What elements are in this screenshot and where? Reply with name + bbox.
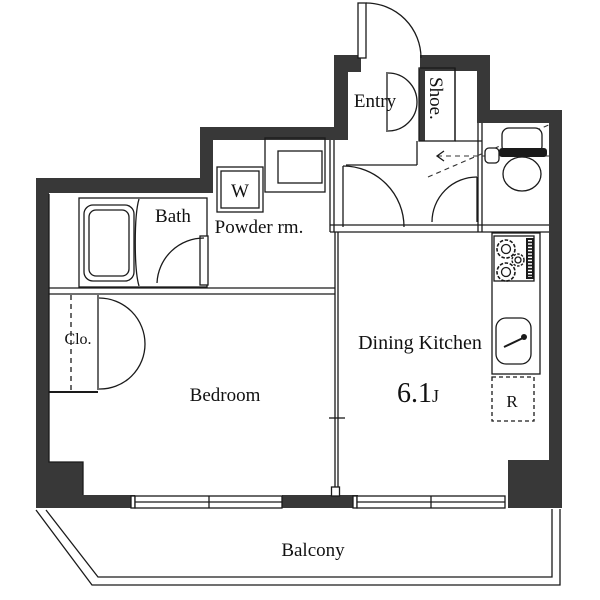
stove-burner-center xyxy=(502,268,511,277)
stove-burner xyxy=(497,263,515,281)
wall-segment xyxy=(83,495,135,508)
hall-door-arc xyxy=(343,166,404,227)
wall-segment xyxy=(508,460,562,508)
toilet-seat-hinge xyxy=(499,148,547,157)
entrance-door-leaf xyxy=(358,3,366,58)
wall-segment xyxy=(282,495,358,508)
wall-segment xyxy=(549,110,562,465)
bathtub xyxy=(84,205,134,281)
room-labels: Entry Shoe. Bath Powder rm. W Clo. Bedro… xyxy=(64,77,518,561)
wall-segment xyxy=(36,462,83,508)
shoe-cabinet-wall xyxy=(419,69,425,141)
label-washer: W xyxy=(231,181,249,202)
bath-door-arc xyxy=(157,238,204,283)
kitchen-sink xyxy=(496,318,531,364)
stove-burner xyxy=(497,240,515,258)
closet-door-arc-bottom xyxy=(99,344,145,389)
toilet-bowl xyxy=(503,157,541,191)
divider-end-cap xyxy=(332,487,340,496)
toilet-room xyxy=(428,124,551,191)
label-powder-room: Powder rm. xyxy=(215,217,304,238)
label-dk-size: 6.1J xyxy=(397,378,439,409)
label-shoe: Shoe. xyxy=(425,77,446,120)
stove-burner-center xyxy=(502,245,511,254)
toilet-door-arc xyxy=(432,177,477,222)
wall-segment xyxy=(36,178,49,468)
wall-segment xyxy=(477,55,490,117)
vanity-sink-basin xyxy=(278,151,322,183)
vanity-counter xyxy=(265,138,325,192)
label-balcony: Balcony xyxy=(281,540,345,561)
label-closet: Clo. xyxy=(64,331,91,348)
wall-segment xyxy=(36,178,213,193)
tub-deck-curve xyxy=(135,199,139,286)
wall-segment xyxy=(334,55,361,72)
closet-door-arc-top xyxy=(99,298,145,344)
bath-door-leaf xyxy=(200,236,208,285)
kitchen-faucet-head xyxy=(521,334,527,340)
label-dining-kitchen: Dining Kitchen xyxy=(358,332,482,354)
bathtub-inner xyxy=(89,210,129,276)
label-bedroom: Bedroom xyxy=(190,385,261,406)
entry-area xyxy=(343,3,477,227)
floor-plan-canvas: Entry Shoe. Bath Powder rm. W Clo. Bedro… xyxy=(0,0,600,600)
floor-plan: Entry Shoe. Bath Powder rm. W Clo. Bedro… xyxy=(0,0,600,600)
label-entry: Entry xyxy=(354,91,397,112)
closet xyxy=(49,295,145,392)
toilet-flush-valve xyxy=(485,148,499,163)
kitchen-faucet xyxy=(504,338,523,347)
label-refrigerator: R xyxy=(506,392,518,411)
stove-burner-small xyxy=(512,254,524,266)
stove-burner-center xyxy=(515,257,521,263)
entrance-door-arc xyxy=(366,3,421,58)
label-bath: Bath xyxy=(155,206,191,227)
